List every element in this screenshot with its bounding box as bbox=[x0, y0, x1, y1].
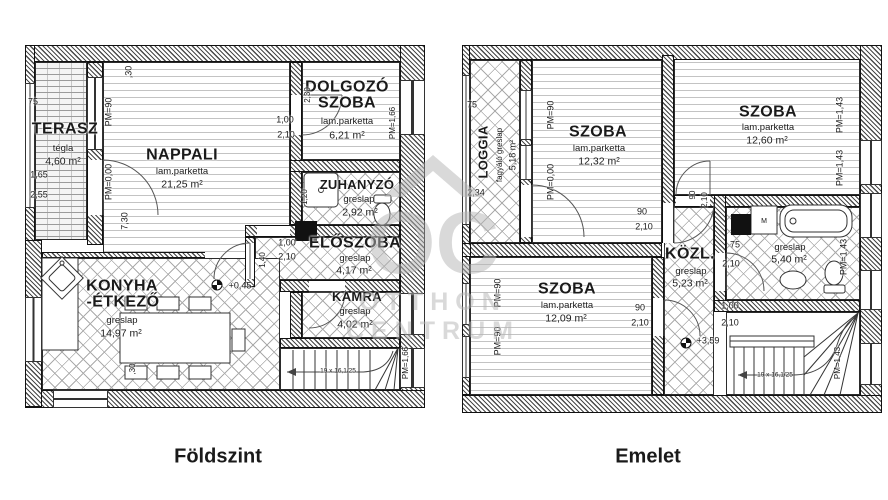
dim-label: 2,10 bbox=[722, 259, 740, 268]
room-finish: greslap bbox=[774, 243, 805, 253]
dim-label: PM=90 bbox=[547, 101, 556, 130]
dim-label: 2,10 bbox=[635, 222, 653, 231]
dim-label: PM=0,00 bbox=[105, 164, 114, 200]
upper-floor-plan: M bbox=[462, 45, 882, 415]
window bbox=[860, 270, 882, 310]
room-area: 21,25 m² bbox=[161, 179, 202, 190]
wall-opening bbox=[205, 252, 245, 258]
room-area: 5,40 m² bbox=[771, 254, 807, 265]
dim-label: 90 bbox=[635, 303, 645, 312]
stair-dim-label: 19 x 16,1/25 bbox=[320, 369, 356, 376]
room-finish: greslap bbox=[106, 316, 137, 326]
door-opening bbox=[653, 298, 663, 336]
window bbox=[860, 343, 882, 385]
dim-label: 1,00 bbox=[278, 238, 296, 247]
room-area: 5,18 m² bbox=[509, 140, 518, 171]
dim-label: 7,30 bbox=[121, 212, 130, 230]
dim-label: 90 bbox=[637, 207, 647, 216]
room-area: 4,17 m² bbox=[336, 265, 372, 276]
dim-label: PM=90 bbox=[494, 327, 503, 356]
dim-label: 2,10 bbox=[721, 318, 739, 327]
room-area: 14,97 m² bbox=[100, 328, 141, 339]
dim-label: PM=90 bbox=[105, 98, 114, 127]
window bbox=[520, 90, 532, 140]
level-label: +3,59 bbox=[697, 336, 720, 345]
dim-label: ,30 bbox=[125, 66, 134, 79]
window bbox=[400, 80, 425, 135]
dim-label: 2,10 bbox=[278, 252, 296, 261]
room-name-szoba-bl: SZOBA bbox=[538, 282, 596, 299]
room-name-eloszoba: ELŐSZOBA bbox=[309, 236, 401, 253]
room-finish: lam.parketta bbox=[321, 117, 373, 127]
wall bbox=[290, 292, 302, 338]
room-name-konyha-2: -ÉTKEZŐ bbox=[86, 295, 159, 312]
dim-label: PM=1,66 bbox=[402, 347, 410, 379]
room-finish: fagyáló greslap bbox=[496, 128, 504, 182]
dim-label: 1,65 bbox=[30, 170, 48, 179]
room-finish: greslap bbox=[343, 195, 374, 205]
room-name-loggia: LOGGIA bbox=[477, 125, 490, 178]
window bbox=[87, 77, 103, 150]
window bbox=[400, 293, 425, 335]
room-finish: lam.parketta bbox=[156, 167, 208, 177]
room-name-kamra: KAMRA bbox=[332, 290, 382, 304]
dim-label: 2,10 bbox=[277, 130, 295, 139]
dim-label: 90 bbox=[689, 191, 697, 200]
wall bbox=[280, 338, 400, 348]
dim-label: PM=1,43 bbox=[836, 97, 845, 133]
window bbox=[520, 145, 532, 180]
dim-label: PM=1,66 bbox=[389, 107, 397, 139]
room-area: 6,21 m² bbox=[329, 130, 365, 141]
dim-label: 75 bbox=[28, 97, 38, 106]
dim-label: ,30 bbox=[129, 363, 137, 374]
dim-label: PM=90 bbox=[494, 279, 503, 308]
wall bbox=[470, 243, 662, 257]
door-opening bbox=[246, 243, 254, 279]
window bbox=[462, 336, 470, 378]
door-opening bbox=[521, 185, 531, 237]
ground-floor-title: Földszint bbox=[174, 447, 262, 468]
room-area: 4,02 m² bbox=[337, 319, 373, 330]
room-name-terasz: TERASZ bbox=[32, 122, 98, 139]
door-opening bbox=[257, 226, 290, 236]
upper-floor-title: Emelet bbox=[615, 447, 681, 468]
stair-dim-label: 19 x 16,1/25 bbox=[757, 373, 793, 380]
room-finish: lam.parketta bbox=[541, 301, 593, 311]
room-name-nappali: NAPPALI bbox=[146, 148, 218, 165]
room-area: 5,23 m² bbox=[672, 278, 708, 289]
door-opening bbox=[663, 203, 673, 243]
wall bbox=[462, 395, 882, 413]
room-name-zuhanyzo: ZUHANYZÓ bbox=[320, 178, 395, 192]
window bbox=[860, 140, 882, 185]
dim-label: PM=0,00 bbox=[547, 164, 556, 200]
dim-label: 75 bbox=[467, 100, 477, 109]
loggia-railing bbox=[462, 75, 470, 225]
room-name-szoba-tl: SZOBA bbox=[569, 125, 627, 142]
ground-floor-plan: 75 TERASZ tégla 4,60 m² 1,65 2,55 PM=90 … bbox=[25, 45, 425, 412]
room-name-dolgozo-2: SZOBA bbox=[318, 96, 376, 113]
dim-label: PM=1,43 bbox=[834, 347, 842, 379]
door-opening bbox=[88, 160, 102, 215]
dim-label: 2,10 bbox=[701, 192, 709, 208]
room-name-szoba-tr: SZOBA bbox=[739, 105, 797, 122]
dim-label: 1,20 bbox=[301, 189, 309, 205]
dim-label: 75 bbox=[730, 240, 740, 249]
dim-label: PM=1,43 bbox=[840, 239, 849, 275]
room-finish: tégla bbox=[53, 144, 74, 154]
wall bbox=[25, 45, 425, 62]
dim-label: PM=1,43 bbox=[836, 150, 845, 186]
level-label: +0,45 bbox=[229, 281, 252, 290]
room-finish: greslap bbox=[339, 307, 370, 317]
dim-label: 1,00 bbox=[721, 301, 739, 310]
room-finish: greslap bbox=[675, 267, 706, 277]
window bbox=[462, 283, 470, 325]
room-finish: greslap bbox=[339, 254, 370, 264]
window bbox=[860, 193, 882, 238]
room-name-kozl: KÖZL. bbox=[665, 247, 715, 264]
dim-label: 2,10 bbox=[631, 318, 649, 327]
window bbox=[25, 297, 42, 362]
dim-label: 2,55 bbox=[30, 190, 48, 199]
room-finish: lam.parketta bbox=[742, 123, 794, 133]
dim-label: 2,34 bbox=[467, 188, 485, 197]
window bbox=[53, 390, 108, 408]
room-area: 12,60 m² bbox=[746, 135, 787, 146]
room-area: 12,09 m² bbox=[545, 313, 586, 324]
room-area: 2,92 m² bbox=[342, 207, 378, 218]
room-finish: lam.parketta bbox=[573, 144, 625, 154]
dim-label: 1,40 bbox=[259, 252, 267, 268]
dim-label: 2,30 bbox=[304, 87, 312, 103]
floorplan-canvas: 75 TERASZ tégla 4,60 m² 1,65 2,55 PM=90 … bbox=[0, 0, 888, 500]
wall bbox=[290, 160, 400, 172]
dim-label: 1,00 bbox=[276, 115, 294, 124]
room-area: 4,60 m² bbox=[45, 156, 81, 167]
room-area: 12,32 m² bbox=[578, 156, 619, 167]
